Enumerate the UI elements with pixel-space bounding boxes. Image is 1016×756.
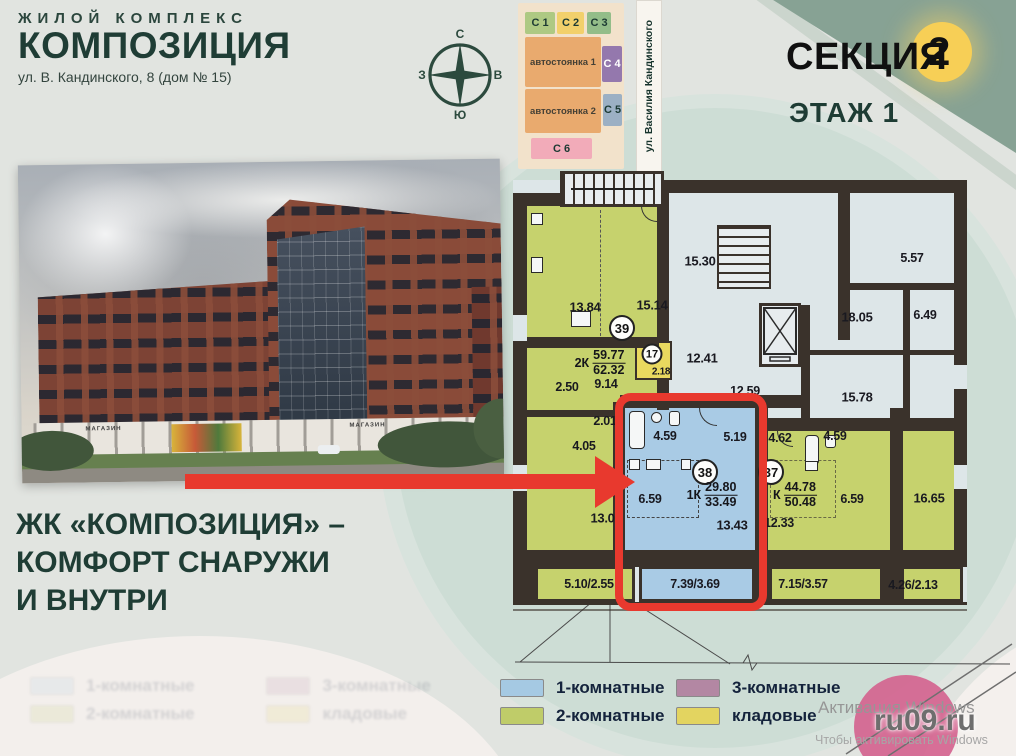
- legend-swatch-1room: [500, 679, 544, 697]
- legend-label: 1-комнатные: [556, 678, 664, 698]
- legend-label: кладовые: [732, 706, 817, 726]
- room-area-label: 15.30: [684, 254, 715, 269]
- shop-sign-2: МАГАЗИН: [349, 422, 385, 429]
- room-area-label: 13.84: [569, 300, 600, 315]
- apartment-37-room-zone: [903, 420, 954, 550]
- pointer-arrow-shaft: [185, 474, 597, 489]
- compass-west-label: З: [418, 68, 426, 82]
- total-area: 62.32: [593, 364, 624, 378]
- room-area-label: 6.59: [840, 492, 863, 506]
- section-number: 2: [928, 30, 950, 75]
- apartment-summary: 2К 59.7762.32: [575, 349, 626, 378]
- building-render-photo: МАГАЗИН МАГАЗИН: [18, 159, 504, 484]
- legend-label: 3-комнатные: [732, 678, 840, 698]
- legend-item-3room: 3-комнатные: [676, 678, 840, 698]
- balcony-area-label: 5.10/2.55: [564, 577, 613, 591]
- slogan-line2: КОМФОРТ СНАРУЖИ: [16, 544, 345, 582]
- wall: [845, 283, 967, 290]
- legend-swatch-storage: [676, 707, 720, 725]
- compass-icon: С В Ю З: [418, 26, 502, 120]
- room-area-label: 16.65: [913, 491, 944, 506]
- site-block-parking1: автостоянка 1: [525, 37, 601, 87]
- floor-title: ЭТАЖ 1: [789, 97, 899, 129]
- slogan: ЖК «КОМПОЗИЦИЯ» – КОМФОРТ СНАРУЖИ И ВНУТ…: [16, 506, 345, 620]
- site-block-c6: C 6: [531, 138, 592, 159]
- brand-block: ЖИЛОЙ КОМПЛЕКС КОМПОЗИЦИЯ ул. В. Кандинс…: [18, 10, 291, 85]
- wall: [661, 180, 967, 193]
- legend-swatch-2room: [500, 707, 544, 725]
- living-area: 44.78: [784, 481, 817, 496]
- apartment-type: 2К: [575, 356, 590, 370]
- wall: [768, 418, 967, 431]
- room-area-label: 18.05: [841, 310, 872, 325]
- room-area-label: 2.50: [555, 380, 578, 394]
- site-block-c4: C 4: [602, 46, 622, 82]
- site-map: C 1 C 2 C 3 автостоянка 1 C 4 автостоянк…: [518, 3, 624, 169]
- apartment-number-badge: 39: [609, 315, 635, 341]
- street-label: ул. Василия Кандинского: [643, 20, 655, 152]
- room-area-label: 6.49: [913, 308, 936, 322]
- shop-sign: МАГАЗИН: [85, 426, 121, 433]
- room-area-label: 4.62: [768, 431, 791, 445]
- apartment-type: К: [773, 488, 781, 502]
- living-area: 59.77: [592, 349, 625, 364]
- legend-item-1room: 1-комнатные: [500, 678, 664, 698]
- room-area-label: 12.41: [686, 351, 717, 366]
- site-block-c1: C 1: [525, 12, 555, 34]
- stairs-top: [560, 171, 664, 207]
- decor-white-corner-left: [0, 636, 530, 756]
- wall: [513, 193, 527, 555]
- room-area-label: 2.01: [593, 414, 616, 428]
- room-area-label: 4.05: [572, 439, 595, 453]
- pointer-arrow-head: [595, 456, 635, 508]
- compass-east-label: В: [494, 68, 502, 82]
- total-area: 50.48: [785, 496, 816, 510]
- elevator: [759, 303, 801, 367]
- window-gap: [513, 315, 527, 341]
- brand-address: ул. В. Кандинского, 8 (дом № 15): [18, 69, 291, 85]
- window-gap: [954, 365, 967, 389]
- slogan-line3: И ВНУТРИ: [16, 582, 345, 620]
- slogan-line1: ЖК «КОМПОЗИЦИЯ» –: [16, 506, 345, 544]
- room-area-label: 5.57: [900, 251, 923, 265]
- stairs-core: [717, 225, 771, 289]
- storage-number-badge: 17: [642, 344, 663, 365]
- room-area-label: 4.59: [823, 429, 846, 443]
- storage-area-label: 2.18: [652, 367, 670, 378]
- room-area-label: 12.33: [764, 516, 794, 530]
- flyer-page: ЖИЛОЙ КОМПЛЕКС КОМПОЗИЦИЯ ул. В. Кандинс…: [0, 0, 1016, 756]
- legend-item-storage: кладовые: [676, 706, 817, 726]
- site-block-c3: C 3: [587, 12, 611, 34]
- highlight-frame-apartment-38: [615, 393, 767, 611]
- section-title: СЕКЦИЯ: [786, 36, 947, 79]
- brand-title: КОМПОЗИЦИЯ: [18, 27, 291, 66]
- car: [318, 445, 340, 454]
- street-strip: ул. Василия Кандинского: [636, 0, 662, 172]
- room-area-label: 9.14: [594, 377, 617, 391]
- legend-label: 2-комнатные: [556, 706, 664, 726]
- wall: [657, 193, 669, 341]
- window-gap: [954, 465, 967, 489]
- compass-north-label: С: [456, 27, 465, 41]
- ghost-legend-item: 2-комнатные кладовые: [30, 704, 407, 724]
- site-watermark: ru09.ru: [874, 704, 976, 738]
- apartment-39-living-zone: [527, 206, 658, 338]
- storefront-mural: [171, 423, 241, 452]
- site-block-c2: C 2: [557, 12, 584, 34]
- balcony-area-label: 7.15/3.57: [778, 577, 827, 591]
- floor-plan: 13.84 15.14 39 2К 59.7762.32 2.50 9.14 2…: [505, 165, 977, 675]
- balcony-area-label: 4.26/2.13: [888, 578, 937, 592]
- apartment-summary: К 44.7850.48: [773, 481, 817, 510]
- legend-swatch-3room: [676, 679, 720, 697]
- stove-icon-37: [805, 461, 818, 471]
- ghost-legend-item: 1-комнатные 3-комнатные: [30, 676, 431, 696]
- appliance-icon: [531, 213, 543, 225]
- room-area-label: 15.14: [636, 298, 667, 313]
- wall: [527, 337, 659, 348]
- site-block-c5: C 5: [603, 94, 622, 126]
- wall: [801, 305, 810, 418]
- legend-item-2room: 2-комнатные: [500, 706, 664, 726]
- wall: [810, 350, 967, 355]
- building-left-wing: [37, 280, 291, 426]
- building-glass-facade: [277, 227, 368, 424]
- appliance-icon: [531, 257, 543, 273]
- room-area-label: 15.78: [841, 390, 872, 405]
- compass-south-label: Ю: [454, 108, 466, 120]
- site-block-parking2: автостоянка 2: [525, 89, 601, 133]
- dashed-partition: [600, 210, 601, 336]
